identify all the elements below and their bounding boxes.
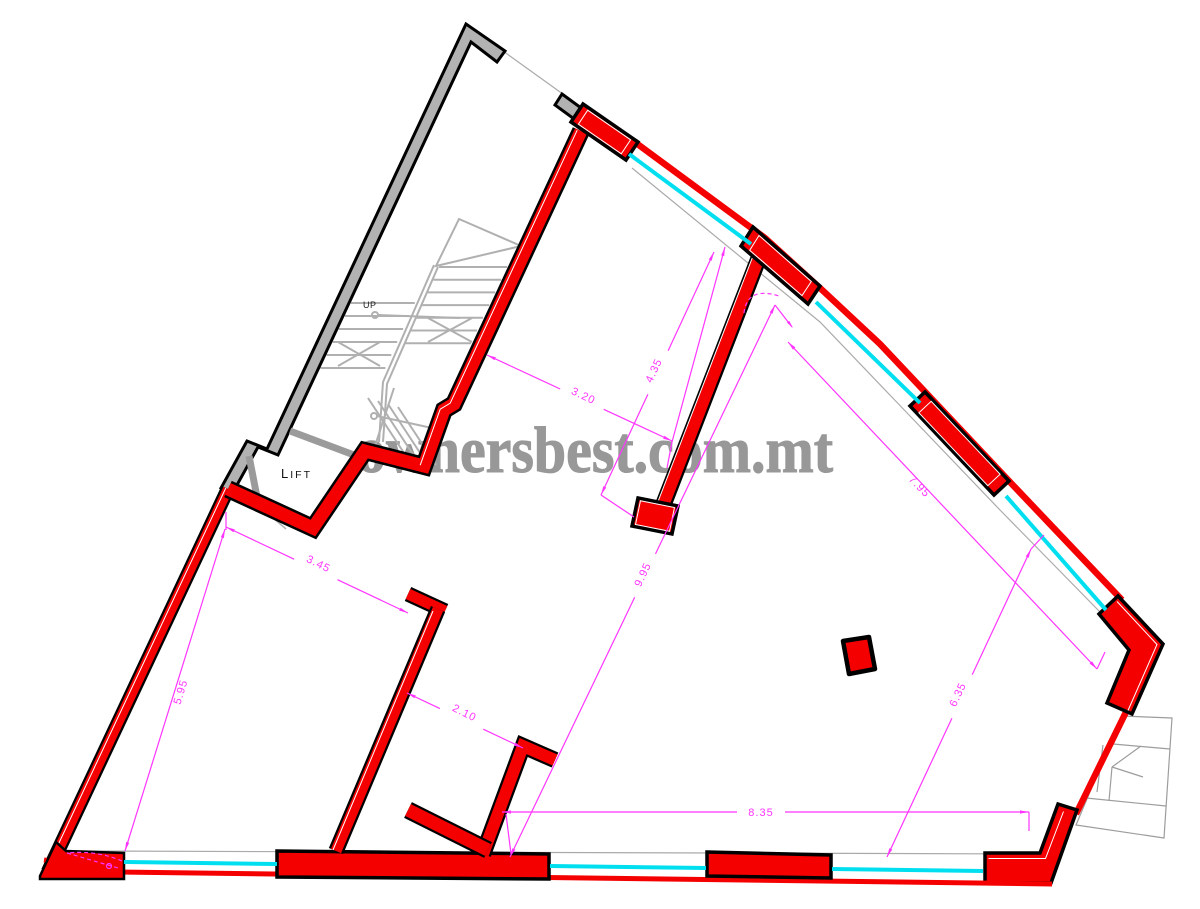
svg-text:LIFT: LIFT [281, 466, 312, 481]
svg-text:UP: UP [363, 300, 377, 310]
svg-text:8.35: 8.35 [748, 807, 773, 819]
